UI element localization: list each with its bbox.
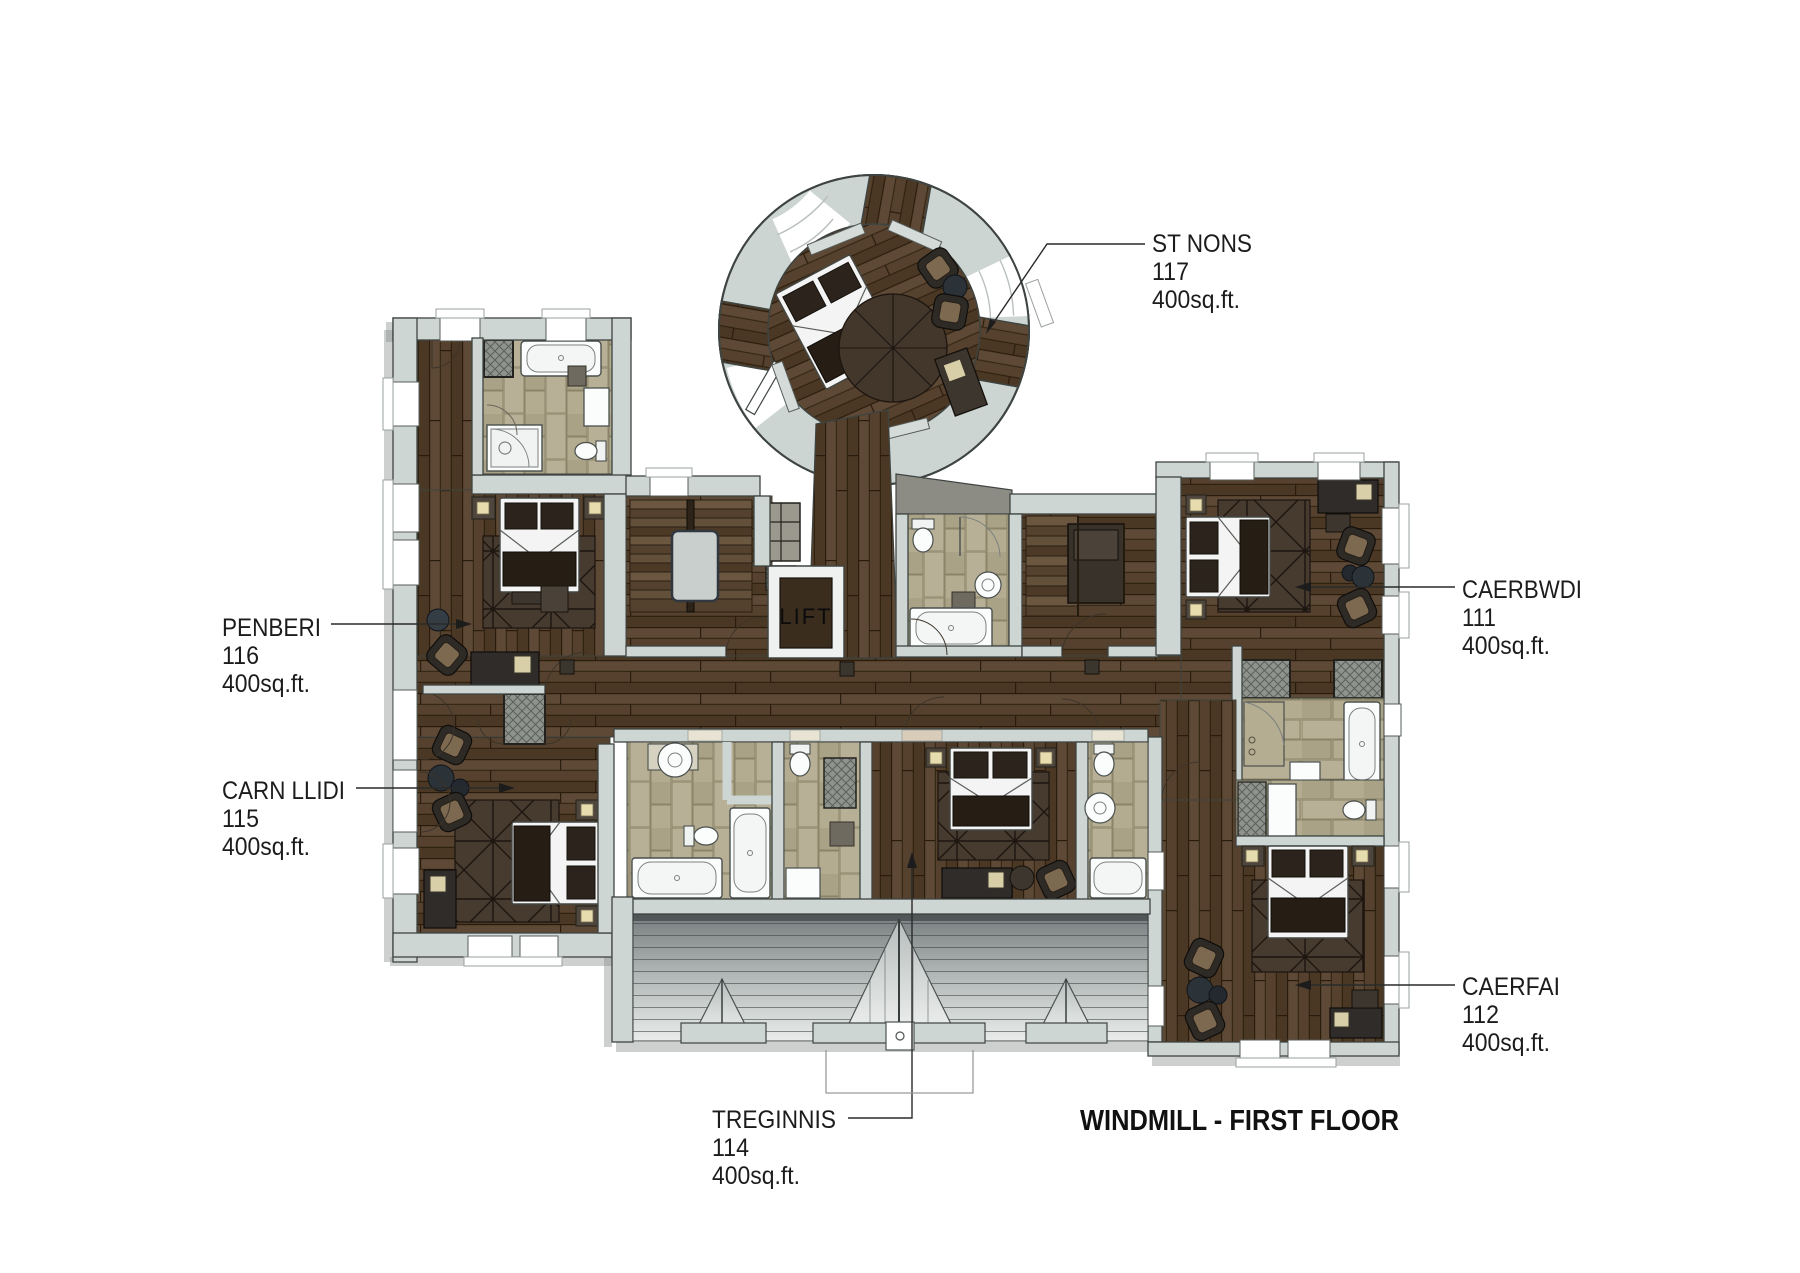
svg-text:CAERBWDI: CAERBWDI: [1462, 576, 1582, 604]
svg-text:112: 112: [1462, 1001, 1499, 1029]
svg-text:ST NONS: ST NONS: [1152, 230, 1252, 258]
svg-text:WINDMILL - FIRST FLOOR: WINDMILL - FIRST FLOOR: [1080, 1105, 1399, 1137]
svg-text:400sq.ft.: 400sq.ft.: [712, 1162, 800, 1190]
svg-text:117: 117: [1152, 258, 1189, 286]
svg-text:CAERFAI: CAERFAI: [1462, 973, 1560, 1001]
svg-text:116: 116: [222, 642, 259, 670]
svg-text:PENBERI: PENBERI: [222, 614, 321, 642]
svg-text:115: 115: [222, 805, 259, 833]
svg-text:400sq.ft.: 400sq.ft.: [1462, 1029, 1550, 1057]
svg-text:111: 111: [1462, 604, 1496, 632]
svg-text:CARN LLIDI: CARN LLIDI: [222, 777, 345, 805]
svg-text:400sq.ft.: 400sq.ft.: [222, 670, 310, 698]
svg-text:400sq.ft.: 400sq.ft.: [1462, 632, 1550, 660]
svg-text:400sq.ft.: 400sq.ft.: [222, 833, 310, 861]
svg-text:TREGINNIS: TREGINNIS: [712, 1106, 836, 1134]
svg-text:400sq.ft.: 400sq.ft.: [1152, 286, 1240, 314]
svg-text:LIFT: LIFT: [779, 604, 832, 629]
svg-text:114: 114: [712, 1134, 749, 1162]
